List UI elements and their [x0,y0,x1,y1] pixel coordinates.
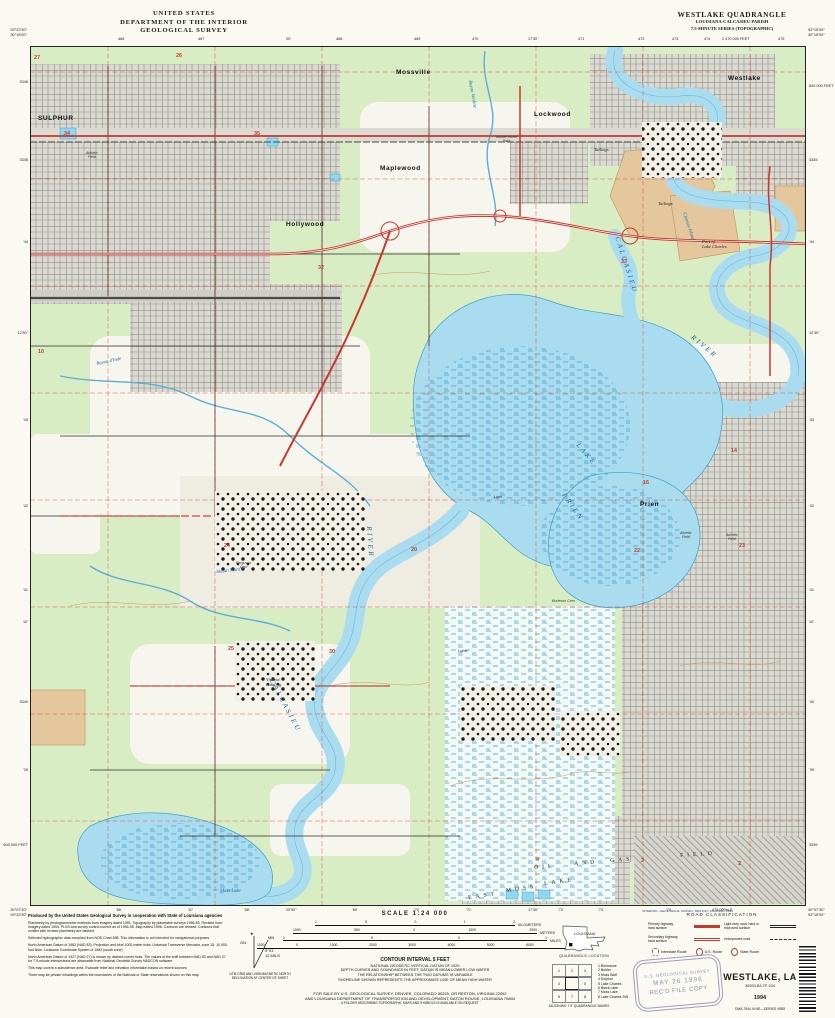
edge-tick: '41 [3,588,28,592]
credit-paragraph: Produced by the United States Geological… [28,913,230,918]
scale-tick-label: 500 [354,929,360,933]
adjoining-grid-cell [565,977,579,990]
stamp-line: REC'D FILE COPY [649,986,708,997]
edge-tick: 474 [704,37,710,41]
scale-bars: 1.5012KILOMETERS1000500010002000METERS1.… [250,921,580,952]
map-sheet [30,46,806,906]
legend-label: Unimproved road [724,938,768,942]
edge-tick: 470 [472,37,478,41]
scale-tick-label: 1 [283,937,285,941]
adjoining-grid-cell: 8 [578,990,592,1003]
credit-paragraph: North American Datum of 1927 (NAD 27) is… [28,955,230,964]
edge-tick: '39 [3,768,28,772]
map-name: WESTLAKE, LA [714,972,806,982]
edge-tick: 10' [809,620,814,624]
sale-note: FOR SALE BY U.S. GEOLOGICAL SURVEY, DENV… [240,991,580,1006]
quadrangle-title: WESTLAKE QUADRANGLE [632,10,832,19]
contour-note-line: SHORELINE SHOWN REPRESENTS THE APPROXIMA… [270,978,560,983]
edge-tick: '66 [116,908,121,912]
edge-tick: 3346 [3,80,28,84]
legend-row: Primary highway, hard surface [648,920,724,933]
edge-tick: 10' [3,620,28,624]
scale-bar-unit: METERS [540,931,555,935]
credit-paragraph: Selected hydrographic data compiled from… [28,936,230,940]
scale-tick-label: 5000 [487,944,495,948]
legend-sample-secondary [694,938,720,941]
credit-paragraph: This map covers a subsidence area. Evalu… [28,966,230,970]
map-credits: Produced by the United States Geological… [28,913,230,980]
scale-title: SCALE 1:24 000 [300,911,530,917]
legend-row: Light-duty road, hard or improved surfac… [724,920,800,933]
legend-label: Secondary highway, hard surface [648,936,692,944]
corner-coordinate-br: 30°07'30"93°15'00" [808,907,825,917]
quadrangle-location-map: LOUISIANA [560,924,608,954]
scale-tick-label: 4000 [448,944,456,948]
edge-tick: '39 [809,768,814,772]
scale-tick-label: .5 [370,937,373,941]
credit-paragraph: Planimetry by photogrammetric methods fr… [28,921,230,934]
quadrangle-series: 7.5-MINUTE SERIES (TOPOGRAPHIC) [632,26,832,33]
edge-tick: '43 [809,418,814,422]
road-classification-title: ROAD CLASSIFICATION [652,912,792,917]
sale-note-line: A FOLDER DESCRIBING TOPOGRAPHIC MAPS AND… [240,1001,580,1006]
scale-tick-label: .5 [364,921,367,925]
barcode [799,946,816,1012]
adjoining-grid-cell: 1 [552,964,566,977]
received-file-stamp: U.S. GEOLOGICAL SURVEYMAY 26 1996REC'D F… [632,953,724,1012]
route-shield-legend: Interstate RouteU.S. RouteState Route [652,948,802,956]
route-shield-label: State Route [740,950,759,954]
edge-tick: 475 [778,37,784,41]
adjoining-caption: ADJOINING 7.5' QUADRANGLE NAMES [534,1004,624,1008]
scale-tick-label: 0 [458,937,460,941]
edge-tick: 12'30" [3,331,28,335]
scale-tick-label: 2 [513,921,515,925]
legend-sample-lightduty [770,925,796,928]
corner-coordinate-tl: 93°22'30"30°15'00" [0,27,27,37]
edge-tick: 469 [414,37,420,41]
scale-bar: 1.5012KILOMETERS [315,921,515,926]
adjoining-grid-cell: 3 [578,964,592,977]
scale-tick-label: 1000 [293,929,301,933]
credit-paragraph: There may be private inholdings within t… [28,973,230,977]
scale-bar: 1000500010002000METERS [293,929,537,934]
scale-tick-label: 1000 [330,944,338,948]
edge-tick: 467 [198,37,204,41]
legend-label: Light-duty road, hard or improved surfac… [724,923,768,931]
scale-tick-label: 0 [415,921,417,925]
adjoining-grid-cell: 4 [552,977,566,990]
route-shield-item: State Route [731,948,759,956]
scale-bar-line [257,948,573,949]
edge-tick: '67 [188,908,193,912]
scale-tick-label: 0 [296,944,298,948]
edge-tick: 840 000 FEET [809,84,833,88]
route-shield-label: Interstate Route [661,950,687,954]
adjoining-quadrangle-grid: 12345678 [552,964,591,1003]
scale-bar: 1.501MILES [283,937,547,942]
route-shield-item: Interstate Route [652,948,687,956]
quadrangle-header: WESTLAKE QUADRANGLE LOUISIANA-CALCASIEU … [632,10,832,32]
edge-tick: 3340 [3,700,28,704]
scale-tick-label: 2000 [529,929,537,933]
scale-bar-unit: KILOMETERS [518,923,541,927]
edge-tick: '42 [809,504,814,508]
adjoining-grid-cell: 7 [565,990,579,1003]
edge-tick: 600 000 FEET [3,843,28,847]
scale-bar-line [283,940,547,941]
scale-bar: 100001000200030004000500060007000FEET [257,944,573,949]
edge-tick: 20' [286,37,291,41]
map-year: 1994 [714,995,806,1001]
edge-tick: 12'30" [809,331,820,335]
scale-bar-line [315,925,515,926]
edge-tick: '41 [809,588,814,592]
topo-map-canvas [30,46,806,906]
edge-tick: '40 [809,700,814,704]
adjoining-grid-cell: 5 [578,977,592,990]
scale-tick-label: 1000 [468,929,476,933]
adjoining-grid-cell: 2 [565,964,579,977]
quadrangle-location-caption: QUADRANGLE LOCATION [544,954,624,958]
scale-tick-label: 3000 [408,944,416,948]
edge-tick: 20'00" [286,908,297,912]
edge-tick: 17'30" [528,37,539,41]
map-reference-code: 30093-B3-TF-024 [714,984,806,988]
agency-line: GEOLOGICAL SURVEY [84,27,284,36]
edge-tick: 471 [578,37,584,41]
quad-location-marker [569,943,572,946]
edge-tick: 472 [638,37,644,41]
edge-tick: 468 [336,37,342,41]
edge-tick: 3345 [809,158,817,162]
legend-label: Primary highway, hard surface [648,923,692,931]
legend-row: Unimproved road [724,933,800,946]
map-title-block: WESTLAKE, LA 30093-B3-TF-024 1994 DMA 75… [714,972,806,1011]
agency-line: UNITED STATES [84,10,284,19]
scale-tick-label: 6000 [526,944,534,948]
edge-tick: '44 [3,240,28,244]
gn-label: GN [240,940,246,945]
edge-tick: '44 [809,240,814,244]
map-series-code: DMA 7544 III NE—SERIES V885 [714,1007,806,1011]
corner-coordinate-bl: 30°07'30"93°22'30" [0,907,27,917]
state-shield-icon [731,948,738,956]
legend-sample-primary [694,925,720,928]
state-name-label: LOUISIANA [574,931,596,936]
scale-tick-label: 1 [545,937,547,941]
edge-tick: 3339 [809,843,817,847]
scale-tick-label: 2000 [369,944,377,948]
scale-tick-label: 1 [464,921,466,925]
edge-tick: '72 [558,908,563,912]
contour-interval-note: CONTOUR INTERVAL 5 FEETNATIONAL GEODETIC… [270,957,560,983]
stamp-line: MAY 26 1996 [653,977,703,988]
scale-tick-label: 0 [413,929,415,933]
legend-sample-unimproved [770,939,796,940]
credit-paragraph: North American Datum of 1983 (NAD 83). P… [28,943,230,952]
edge-tick: 3345 [3,158,28,162]
scale-tick-label: 1000 [257,944,265,948]
road-classification-legend: Primary highway, hard surfaceSecondary h… [648,920,800,946]
edge-tick: '43 [3,418,28,422]
agency-line: DEPARTMENT OF THE INTERIOR [84,19,284,28]
edge-tick: '42 [3,504,28,508]
edge-tick: 466 [118,37,124,41]
adjoining-grid-cell: 6 [552,990,566,1003]
interstate-shield-icon [652,948,659,956]
edge-tick: '68 [244,908,249,912]
stamp-line: U.S. GEOLOGICAL SURVEY [644,969,710,979]
edge-tick: 473 [672,37,678,41]
agency-header: UNITED STATES DEPARTMENT OF THE INTERIOR… [84,10,284,36]
legend-row: Secondary highway, hard surface [648,933,724,946]
scale-bar-line [293,933,537,934]
edge-tick: 2 470 000 FEET [722,37,750,41]
scale-tick-label: 1 [315,921,317,925]
